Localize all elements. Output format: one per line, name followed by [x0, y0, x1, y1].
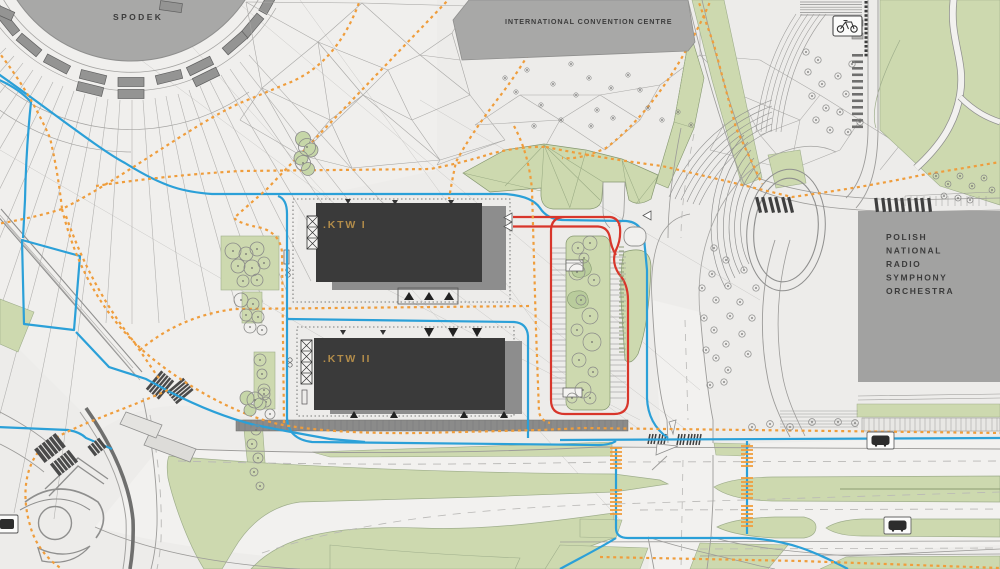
svg-text:.KTW II: .KTW II	[323, 353, 371, 365]
svg-text:INTERNATIONAL CONVENTION CENTR: INTERNATIONAL CONVENTION CENTRE	[505, 17, 672, 26]
svg-text:SPODEK: SPODEK	[113, 12, 163, 22]
svg-text:RADIO: RADIO	[886, 259, 921, 269]
svg-text:NATIONAL: NATIONAL	[886, 246, 942, 256]
svg-text:SYMPHONY: SYMPHONY	[886, 273, 947, 283]
svg-text:ORCHESTRA: ORCHESTRA	[886, 286, 954, 296]
svg-text:POLISH: POLISH	[886, 232, 927, 242]
svg-text:.KTW I: .KTW I	[323, 219, 366, 231]
